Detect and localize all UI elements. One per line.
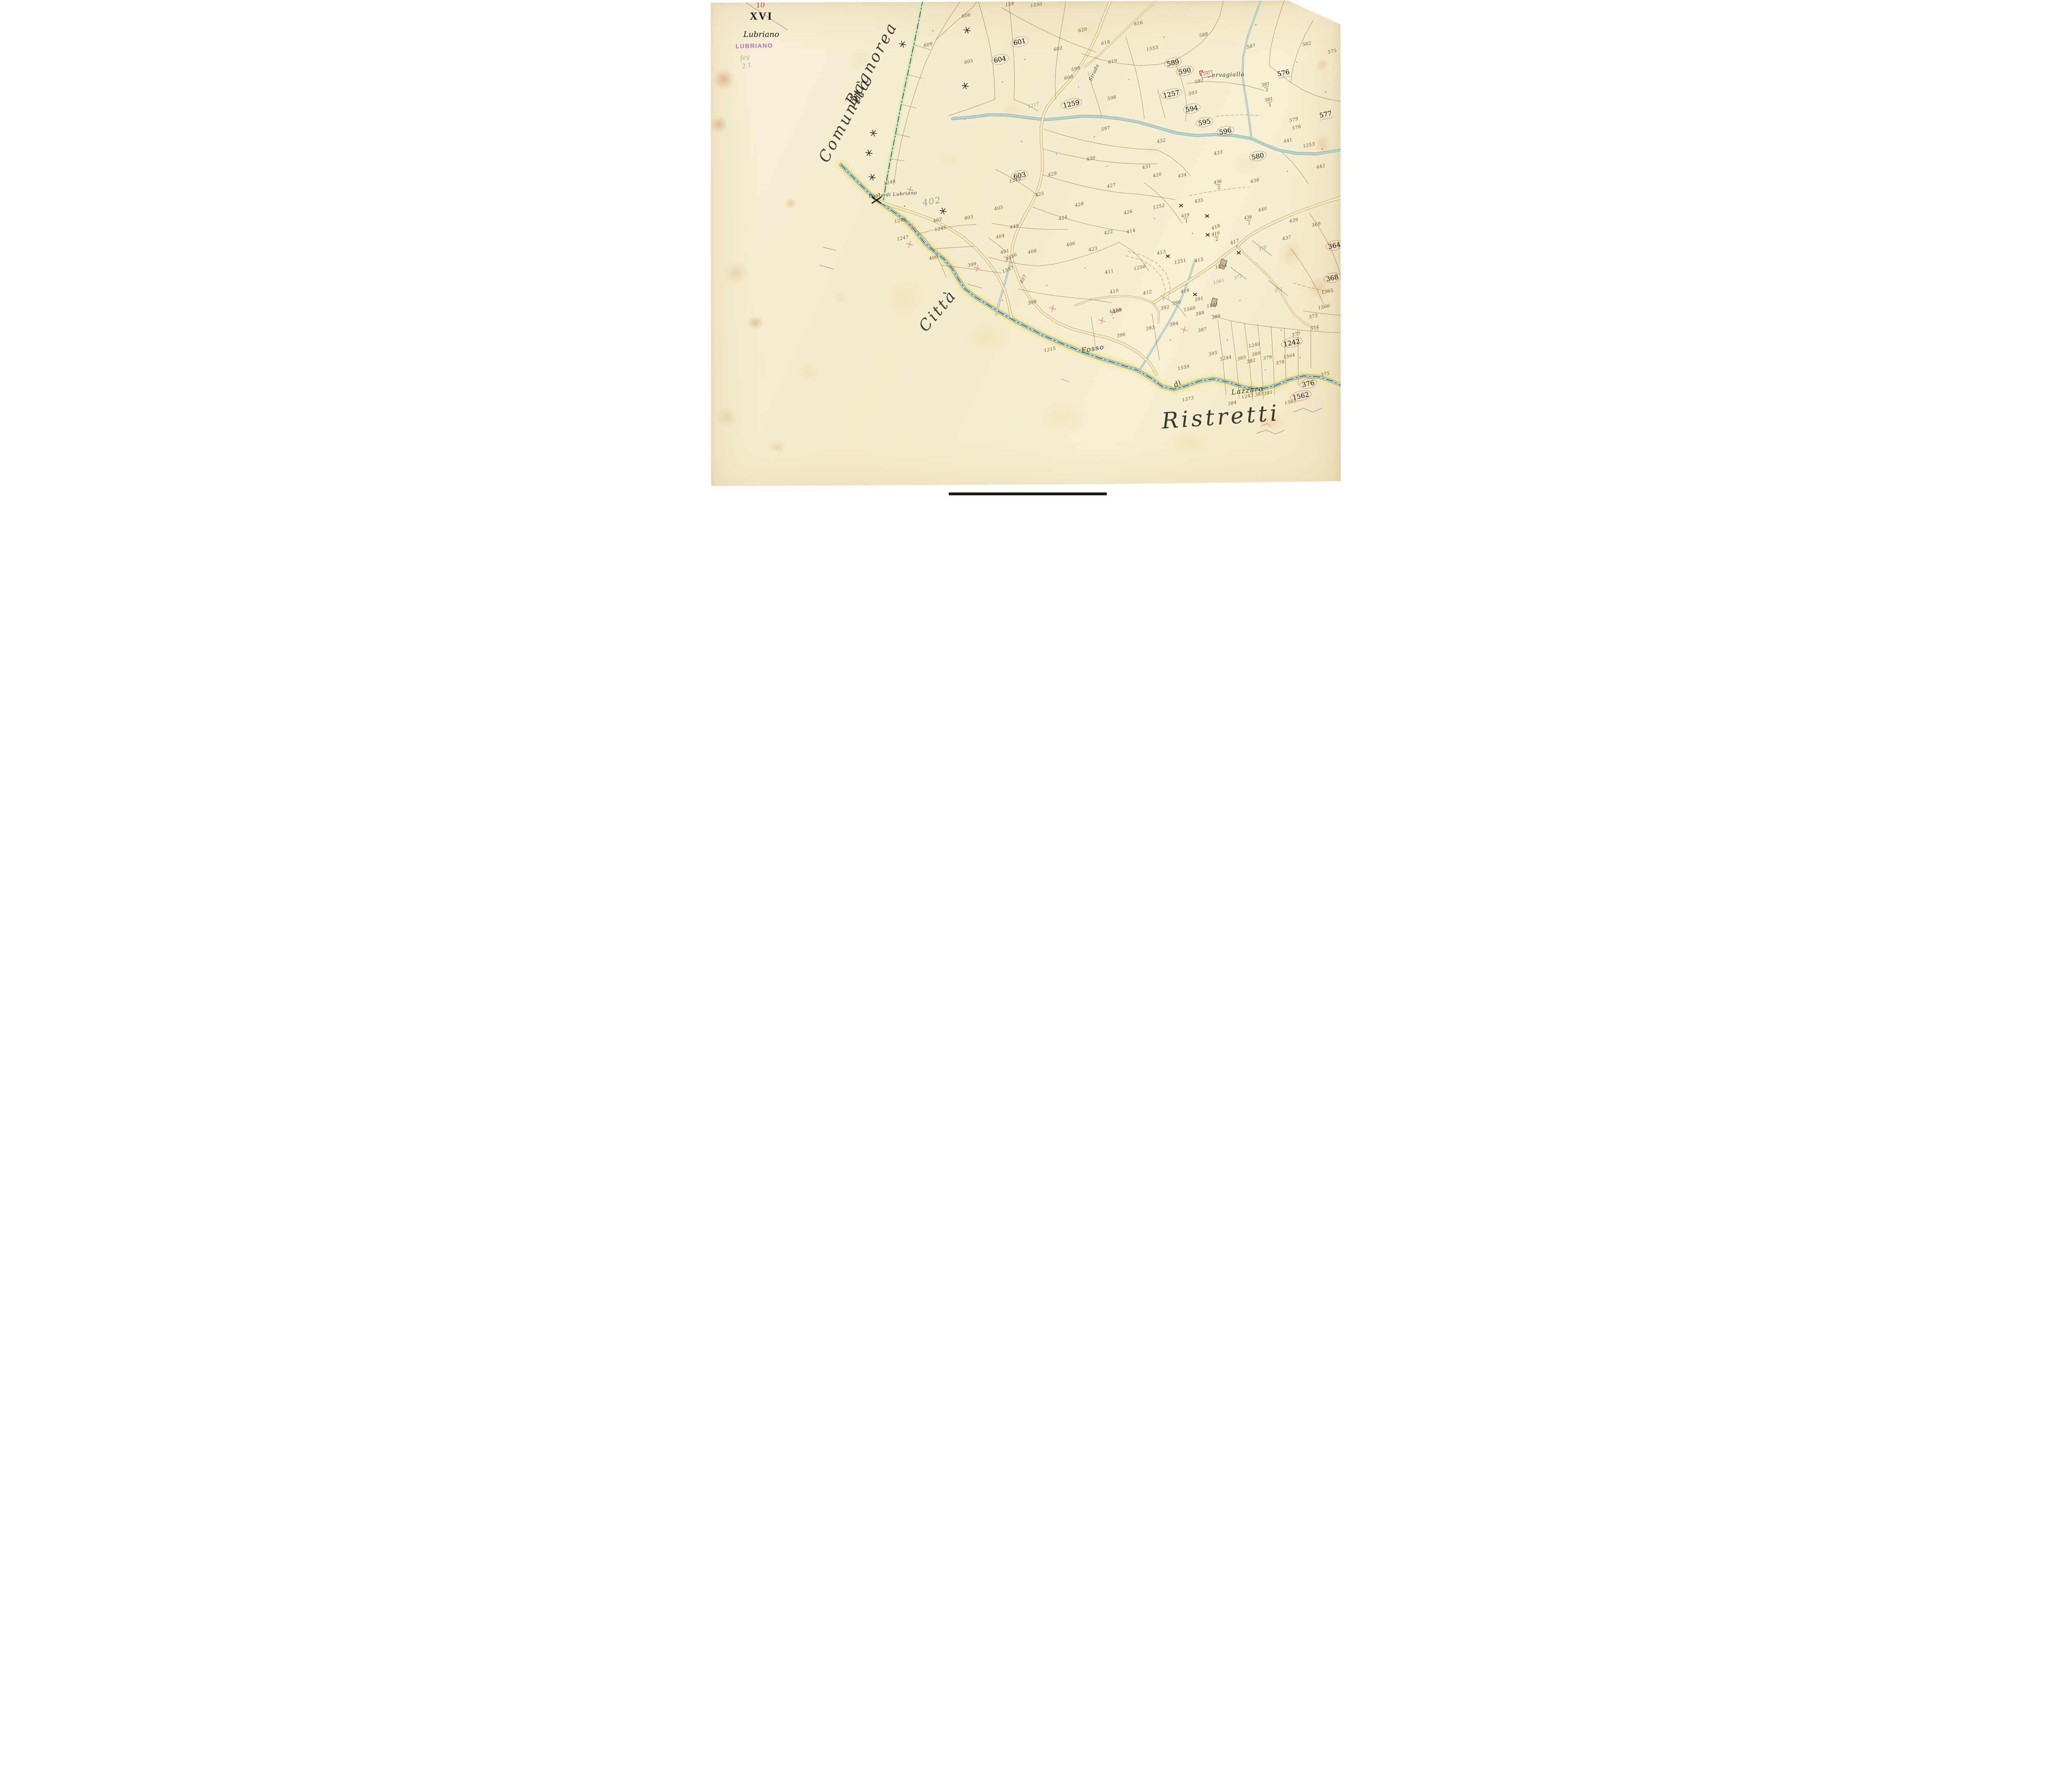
parcel-label: 368 xyxy=(1323,271,1341,284)
parcel-label: 377 xyxy=(1291,331,1301,337)
parcel-label: 398 xyxy=(1027,299,1037,305)
parcel-label: 442 xyxy=(1316,163,1326,169)
parcel-label: 596 xyxy=(1215,125,1235,138)
place-label: Ponte di Lubriano xyxy=(868,191,917,199)
parcel-label: 381 xyxy=(1263,390,1273,396)
parcel-label: 588 xyxy=(1199,32,1209,38)
place-label: Bagnorea xyxy=(843,19,900,108)
parcel-label: 1252 xyxy=(1152,203,1165,210)
parcel-label: 1553 xyxy=(1146,45,1159,52)
parcel-label: 1247 xyxy=(897,234,909,241)
parcel-label: 425 xyxy=(1035,191,1045,197)
parcel-label: 437 xyxy=(1282,235,1292,241)
parcel-label: 1248 xyxy=(883,179,896,186)
parcel-label: 1215 xyxy=(1043,346,1056,353)
parcel-label: 429 xyxy=(1047,171,1057,177)
parcel-label: 582 xyxy=(1302,41,1312,47)
parcel-label: 426 xyxy=(1123,209,1133,215)
parcel-label: 410 xyxy=(1109,288,1119,295)
parcel-label: 408 xyxy=(1027,249,1037,255)
parcel-label: 382 xyxy=(1246,358,1256,364)
parcel-label: 579 xyxy=(1289,116,1299,122)
parcel-label: 1241 xyxy=(1206,302,1219,309)
parcel-label: 1251 xyxy=(1174,258,1186,265)
parcel-label: 618 xyxy=(1101,40,1111,46)
parcel-label: 1246 xyxy=(894,217,907,224)
parcel-label: 154 xyxy=(1005,1,1015,7)
parcel-label: 415 xyxy=(1194,257,1204,263)
parcel-label: 420 xyxy=(1152,172,1162,178)
parcel-label: 439 xyxy=(1289,217,1299,223)
parcel-label: 407 xyxy=(1019,274,1028,284)
parcel-label: 386 xyxy=(1211,314,1221,320)
parcel-label: 4191 xyxy=(1181,212,1191,225)
parcel-label: 587 xyxy=(1246,43,1256,49)
parcel-label: 1250 xyxy=(1134,264,1146,271)
parcel-label: 370 xyxy=(1258,245,1267,252)
parcel-label: 1563 xyxy=(1284,398,1297,405)
parcel-label: 1217 xyxy=(1027,102,1040,109)
parcel-label: 374 xyxy=(1310,324,1320,331)
parcel-label: 364 xyxy=(1324,239,1341,252)
parcel-label: 423 xyxy=(1088,246,1098,252)
parcel-label: 411 xyxy=(1104,268,1114,274)
place-label: Fosso xyxy=(1081,344,1105,355)
parcel-label: 395 xyxy=(1208,350,1218,356)
parcel-label: 412 xyxy=(1143,289,1152,295)
parcel-label: 598 xyxy=(1107,95,1117,101)
parcel-label: 580 xyxy=(1248,149,1267,162)
parcel-label: 600 xyxy=(1064,74,1074,80)
parcel-label: 4362 xyxy=(1213,179,1223,191)
parcel-label: 1244 xyxy=(1220,354,1232,361)
parcel-label: 449 xyxy=(1009,223,1019,229)
parcel-label: 391 xyxy=(1194,296,1204,302)
parcel-label: 609 xyxy=(923,41,933,48)
parcel-label: 441 xyxy=(1283,137,1293,143)
map-labels: ComunitàdiBagnoreaCittàRistrettiFossodiL… xyxy=(708,0,1341,497)
parcel-label: 597 xyxy=(1101,125,1111,132)
parcel-label: 432 xyxy=(1156,138,1166,144)
parcel-label: 590 xyxy=(1175,64,1195,77)
parcel-label: 593 xyxy=(1188,90,1198,96)
parcel-label: 375 xyxy=(1320,371,1330,377)
parcel-label: 434 xyxy=(1177,172,1187,178)
map-sheet: 10 XVI Lubriano LUBRIANO fey 2 1 Comunit… xyxy=(708,0,1341,497)
scan-edge-artifact xyxy=(949,492,1107,495)
parcel-label: 1564 xyxy=(1283,353,1295,360)
parcel-label: 1566 xyxy=(1318,304,1330,311)
parcel-label: 1245 xyxy=(934,225,947,232)
place-label: Città xyxy=(916,287,959,334)
parcel-label: 592 xyxy=(1194,78,1204,84)
parcel-label: 373 xyxy=(1308,313,1318,319)
parcel-label: 1259 xyxy=(1060,97,1083,111)
parcel-label: 5812 xyxy=(1261,81,1272,93)
parcel-label: 383 xyxy=(1254,391,1264,397)
parcel-label: 1254 xyxy=(1215,263,1228,270)
parcel-label: 575 xyxy=(1327,48,1337,54)
parcel-label: 417 xyxy=(1230,238,1240,245)
parcel-label: 400 xyxy=(929,254,938,261)
parcel-label: 371 xyxy=(1274,287,1283,293)
parcel-label: 380 xyxy=(1251,351,1261,357)
parcel-label: 427 xyxy=(1106,183,1116,189)
parcel-label: 428 xyxy=(1074,202,1084,208)
parcel-label: 1253 xyxy=(1302,141,1315,148)
parcel-label: 396 xyxy=(1116,332,1126,338)
parcel-label: 4192 xyxy=(1211,231,1222,243)
parcel-label: 394 xyxy=(1169,321,1179,327)
parcel-label: 414 xyxy=(1126,228,1136,234)
parcel-label: 388 xyxy=(1195,310,1205,316)
parcel-label: 387 xyxy=(1197,327,1207,333)
parcel-label: 1242 xyxy=(1280,336,1304,349)
parcel-label: 406 xyxy=(1066,241,1076,247)
paper: 10 XVI Lubriano LUBRIANO fey 2 1 Comunit… xyxy=(708,0,1341,497)
parcel-label: 385 xyxy=(1237,355,1247,361)
parcel-label: 594 xyxy=(1182,102,1202,115)
parcel-label: 416 xyxy=(1180,288,1190,294)
parcel-label: 1559 xyxy=(1177,364,1190,371)
parcel-label: 4361 xyxy=(1243,214,1254,227)
parcel-label: 393 xyxy=(1145,325,1155,331)
parcel-label: 438 xyxy=(1250,177,1260,184)
parcel-label: 620 xyxy=(1078,27,1088,33)
parcel-label: 422 xyxy=(1104,229,1113,236)
parcel-label: 1550 xyxy=(1030,2,1043,8)
parcel-label: 433 xyxy=(1213,150,1223,156)
parcel-label: 5811 xyxy=(1264,96,1274,109)
parcel-label: 402 xyxy=(933,217,943,223)
parcel-label: 403 xyxy=(964,214,974,220)
parcel-label: 599 xyxy=(1071,66,1081,72)
parcel-label: 418 xyxy=(1211,223,1221,231)
parcel-label: 413 xyxy=(1156,249,1166,255)
parcel-label: 404 xyxy=(995,233,1005,239)
parcel-label: 578 xyxy=(1292,125,1302,131)
parcel-label: 616 xyxy=(1134,20,1143,26)
parcel-label: 379 xyxy=(1263,354,1272,361)
parcel-label: 1240 xyxy=(1248,342,1261,349)
parcel-label: 430 xyxy=(1086,155,1096,161)
parcel-label: 435 xyxy=(1194,197,1204,204)
parcel-label: 619 xyxy=(1108,59,1118,65)
parcel-label: 399 xyxy=(967,261,977,268)
parcel-label: 402 xyxy=(922,196,942,208)
place-label: di xyxy=(1172,379,1183,389)
parcel-label: 378 xyxy=(1275,359,1285,365)
parcel-label: 602 xyxy=(1053,45,1063,52)
parcel-label: 372 xyxy=(1233,274,1243,281)
place-label: Strada xyxy=(1088,64,1100,82)
parcel-label: 390 xyxy=(1172,300,1181,306)
parcel-label: 431 xyxy=(1142,164,1152,170)
parcel-label: 424 xyxy=(1058,215,1068,221)
parcel-label: 601 xyxy=(1009,35,1029,49)
parcel-label: 376 xyxy=(1299,377,1318,390)
parcel-label: 1373 xyxy=(1181,396,1194,403)
parcel-label: 605 xyxy=(964,59,974,65)
parcel-label: 1565 xyxy=(1321,288,1333,295)
parcel-label: 576 xyxy=(1277,68,1290,79)
parcel-label: 604 xyxy=(990,53,1010,67)
parcel-label: 606 xyxy=(961,12,971,18)
parcel-label: 1561 xyxy=(1213,278,1225,285)
parcel-label: 401 xyxy=(1000,249,1010,255)
parcel-label: 392 xyxy=(1160,305,1170,311)
place-label: Ristretti xyxy=(1161,402,1281,432)
parcel-label: 405 xyxy=(994,205,1004,211)
parcel-label: 369 xyxy=(1311,221,1321,227)
parcel-label: 595 xyxy=(1195,116,1214,129)
parcel-label: 577 xyxy=(1319,109,1333,120)
parcel-label: 440 xyxy=(1258,206,1268,213)
parcel-label: 1249 xyxy=(1009,177,1021,184)
parcel-label: 1557 xyxy=(1002,265,1015,274)
parcel-label: 1257 xyxy=(1160,87,1183,101)
parcel-label: 1560 xyxy=(1184,305,1196,312)
